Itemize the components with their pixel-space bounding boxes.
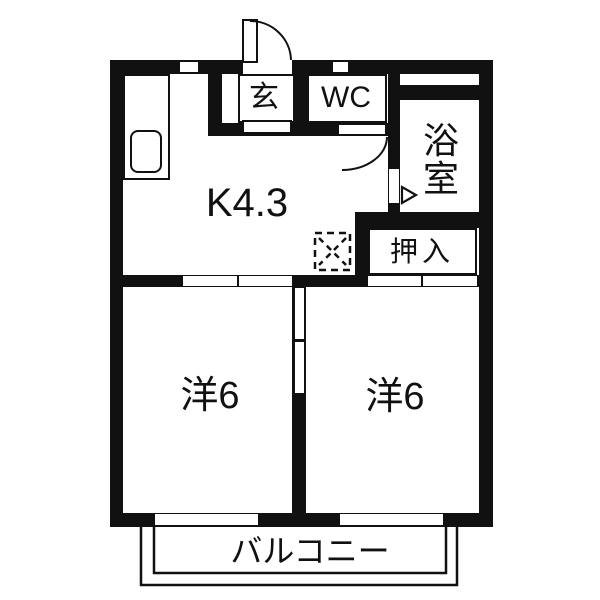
entrance-label: 玄 [249,83,279,113]
bath-label-char: 浴 [423,122,459,160]
bedroom-left-label: 洋6 [180,377,239,415]
entrance-door-leaf [243,20,257,62]
balcony-label: バルコニー [230,535,389,567]
wc-label: WC [321,83,371,113]
washing-machine-pan [315,233,350,270]
bath-label-char: 室 [423,160,459,198]
bath-door-arrow-icon [402,187,416,203]
plan-linework [0,0,600,600]
closet-label: 押入 [390,238,454,266]
bath-label: 浴 室 [423,122,459,198]
kitchen-label: K4.3 [206,183,288,223]
wc-door-arc [342,137,387,170]
floor-plan: K4.3 玄 WC 浴 室 押入 洋6 洋6 バルコニー [0,0,600,600]
bedroom-right-label: 洋6 [365,378,424,416]
